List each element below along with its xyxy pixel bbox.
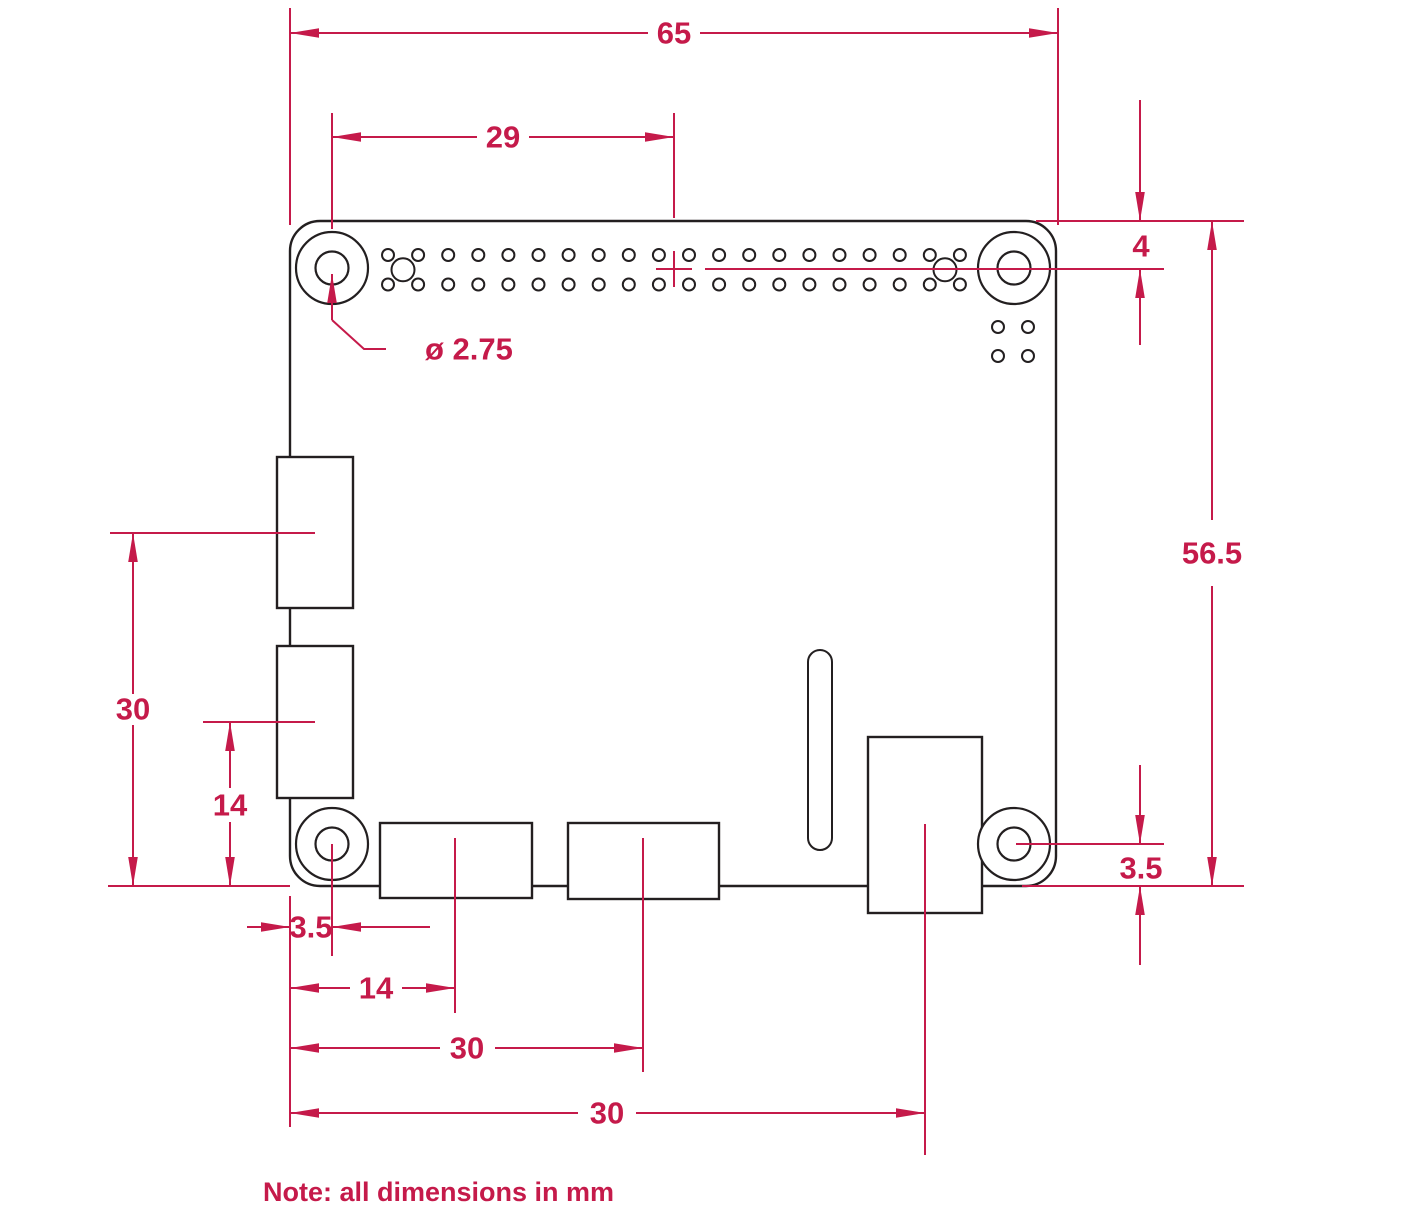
mechanical-drawing-page: 65 29 4 56.5 ø 2.75 3.5 30 14 3.5 14 30 … — [0, 0, 1419, 1214]
dim-label-power-connector: 30 — [590, 1096, 624, 1131]
dim-label-hole-diameter: ø 2.75 — [425, 332, 513, 367]
units-note: Note: all dimensions in mm — [263, 1177, 614, 1207]
dim-label-left-connector-2: 14 — [213, 788, 248, 823]
board-dimension-drawing: 65 29 4 56.5 ø 2.75 3.5 30 14 3.5 14 30 … — [0, 0, 1419, 1214]
dim-label-bottom-connector-1: 14 — [359, 971, 394, 1006]
dim-label-hole-from-bottom-right: 3.5 — [1119, 851, 1162, 886]
dim-label-board-width: 65 — [657, 16, 691, 51]
slot-cutout — [808, 650, 832, 850]
board-layer — [277, 221, 1056, 913]
gpio-end-hole-left — [392, 258, 415, 281]
dim-label-hole-from-left: 3.5 — [289, 910, 332, 945]
dim-label-gpio-center: 29 — [486, 120, 520, 155]
dim-label-bottom-connector-2: 30 — [450, 1031, 484, 1066]
dim-label-left-connector-1: 30 — [116, 692, 150, 727]
dim-label-board-height: 56.5 — [1182, 536, 1242, 571]
dim-label-hole-from-top: 4 — [1132, 229, 1150, 264]
